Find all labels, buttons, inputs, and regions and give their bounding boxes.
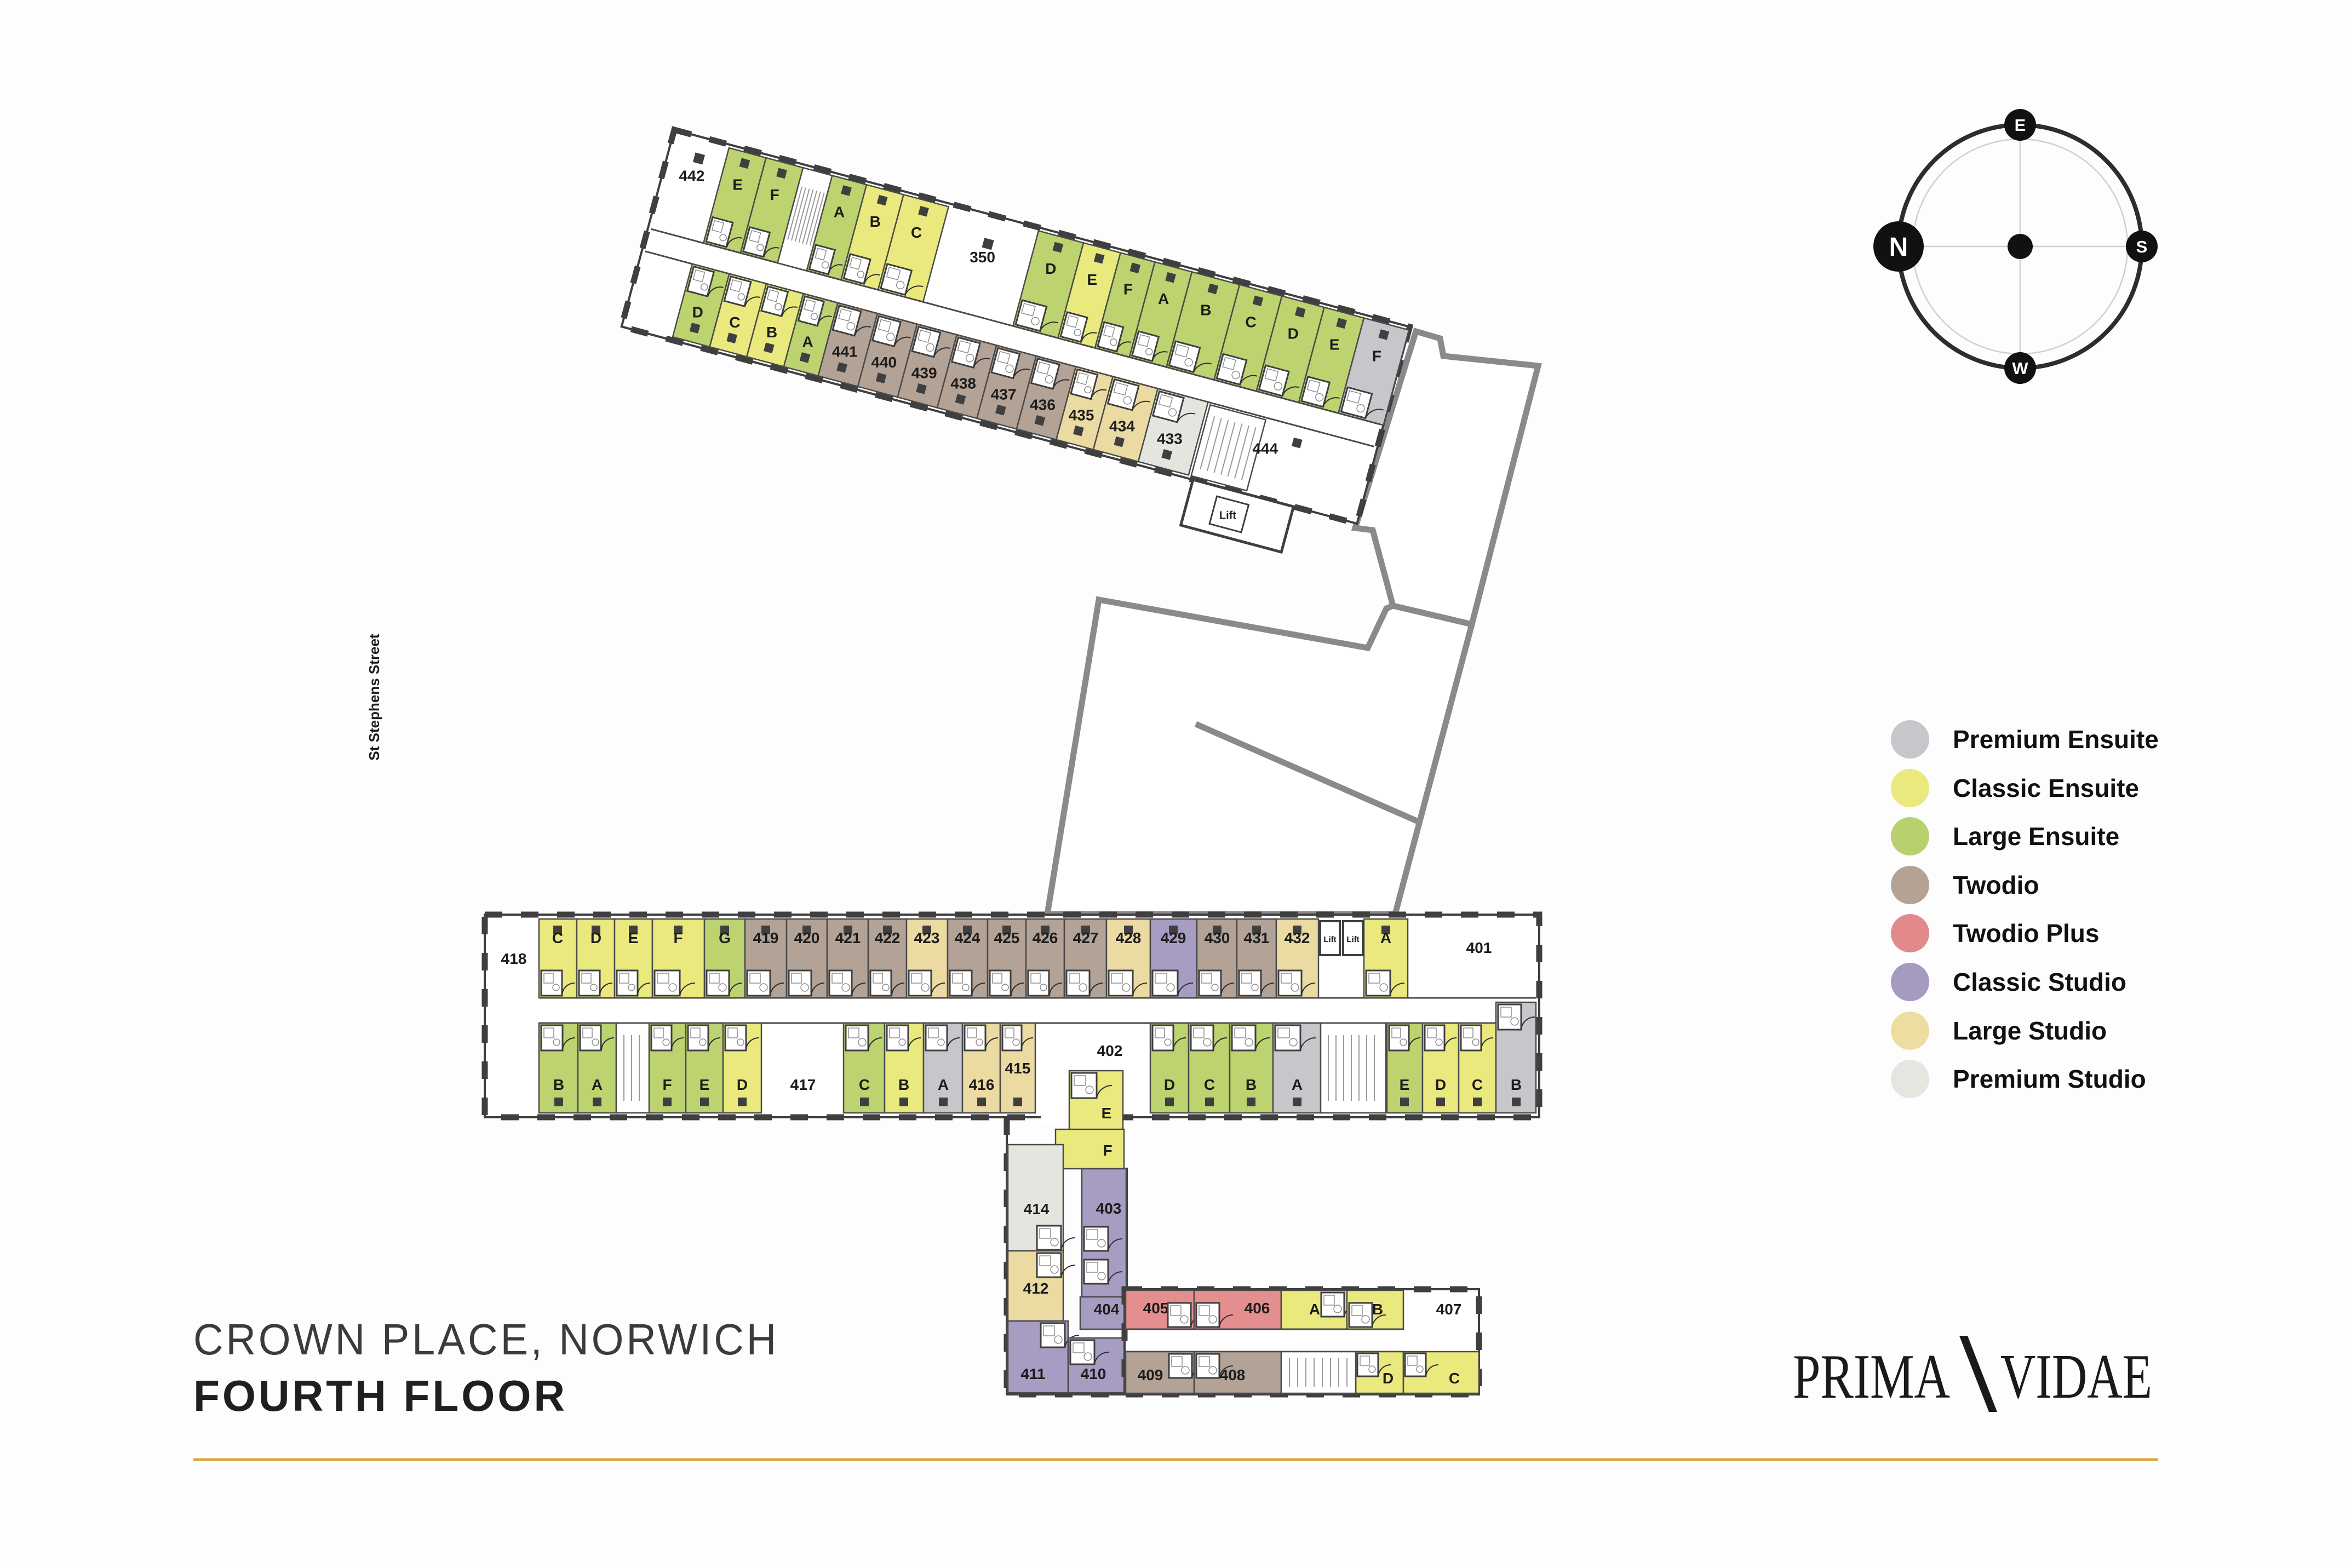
svg-text:F: F — [1123, 281, 1133, 298]
svg-text:406: 406 — [1245, 1300, 1270, 1317]
svg-text:E: E — [1087, 271, 1097, 288]
svg-text:A: A — [802, 334, 813, 351]
svg-text:418: 418 — [501, 950, 527, 967]
svg-text:B: B — [1246, 1076, 1257, 1093]
svg-text:407: 407 — [1436, 1301, 1462, 1318]
svg-text:C: C — [911, 224, 922, 241]
svg-text:B: B — [1511, 1076, 1522, 1093]
svg-text:439: 439 — [911, 365, 937, 382]
svg-text:A: A — [1380, 929, 1391, 946]
svg-text:A: A — [834, 203, 845, 220]
svg-text:C: C — [1204, 1076, 1215, 1093]
svg-text:Large Ensuite: Large Ensuite — [1953, 822, 2119, 851]
svg-text:VIDAE: VIDAE — [2000, 1342, 2152, 1411]
svg-text:C: C — [552, 929, 563, 946]
svg-text:PRIMA: PRIMA — [1793, 1342, 1950, 1411]
svg-text:C: C — [859, 1076, 870, 1093]
svg-text:417: 417 — [790, 1076, 816, 1093]
svg-text:Twodio: Twodio — [1953, 871, 2039, 899]
svg-text:D: D — [1045, 260, 1056, 277]
svg-text:404: 404 — [1094, 1301, 1120, 1318]
svg-text:B: B — [1200, 302, 1211, 319]
svg-text:D: D — [737, 1076, 748, 1093]
svg-text:Lift: Lift — [1346, 935, 1359, 944]
svg-text:St Stephens Street: St Stephens Street — [366, 634, 382, 761]
svg-text:405: 405 — [1143, 1300, 1169, 1317]
svg-text:S: S — [2136, 237, 2148, 256]
svg-text:B: B — [553, 1076, 564, 1093]
svg-text:E: E — [1329, 336, 1340, 353]
svg-text:E: E — [1400, 1076, 1410, 1093]
svg-text:436: 436 — [1030, 396, 1056, 413]
svg-text:412: 412 — [1023, 1280, 1049, 1297]
svg-text:419: 419 — [753, 929, 779, 946]
svg-text:421: 421 — [835, 929, 861, 946]
svg-text:427: 427 — [1073, 929, 1099, 946]
svg-text:416: 416 — [969, 1076, 995, 1093]
svg-text:Classic Studio: Classic Studio — [1953, 968, 2126, 996]
svg-text:E: E — [2015, 116, 2026, 135]
svg-text:C: C — [1449, 1370, 1460, 1387]
svg-text:431: 431 — [1244, 929, 1270, 946]
svg-text:E: E — [732, 176, 743, 193]
svg-text:414: 414 — [1024, 1201, 1050, 1217]
svg-text:Lift: Lift — [1323, 935, 1336, 944]
svg-text:E: E — [699, 1076, 710, 1093]
svg-text:415: 415 — [1005, 1060, 1031, 1077]
svg-text:401: 401 — [1466, 939, 1492, 956]
svg-text:B: B — [766, 324, 777, 341]
svg-text:F: F — [1103, 1142, 1112, 1159]
svg-text:425: 425 — [994, 929, 1020, 946]
svg-text:430: 430 — [1205, 929, 1230, 946]
svg-text:409: 409 — [1138, 1366, 1163, 1383]
svg-text:437: 437 — [991, 386, 1017, 403]
svg-text:428: 428 — [1116, 929, 1142, 946]
svg-text:Premium Ensuite: Premium Ensuite — [1953, 725, 2159, 754]
svg-text:C: C — [729, 314, 740, 331]
svg-text:435: 435 — [1069, 406, 1094, 423]
svg-text:Lift: Lift — [1219, 510, 1236, 522]
svg-text:432: 432 — [1285, 929, 1310, 946]
svg-text:424: 424 — [955, 929, 980, 946]
svg-text:429: 429 — [1161, 929, 1186, 946]
svg-text:411: 411 — [1020, 1365, 1045, 1382]
svg-text:E: E — [1102, 1105, 1112, 1122]
svg-text:438: 438 — [950, 375, 976, 392]
svg-text:A: A — [938, 1076, 949, 1093]
svg-text:G: G — [719, 929, 731, 946]
svg-text:F: F — [1372, 347, 1381, 364]
svg-text:W: W — [2012, 359, 2028, 378]
svg-text:440: 440 — [871, 354, 897, 371]
svg-text:Classic Ensuite: Classic Ensuite — [1953, 774, 2139, 802]
svg-text:426: 426 — [1033, 929, 1058, 946]
svg-text:CROWN PLACE, NORWICH: CROWN PLACE, NORWICH — [193, 1315, 779, 1364]
svg-text:N: N — [1889, 233, 1908, 262]
svg-text:Large Studio: Large Studio — [1953, 1016, 2107, 1045]
svg-text:350: 350 — [970, 249, 995, 266]
svg-text:C: C — [1245, 314, 1256, 331]
svg-text:B: B — [870, 213, 881, 230]
svg-text:F: F — [770, 186, 779, 203]
svg-text:403: 403 — [1096, 1200, 1122, 1217]
svg-text:D: D — [1435, 1076, 1446, 1093]
svg-text:402: 402 — [1097, 1042, 1123, 1059]
svg-text:422: 422 — [875, 929, 901, 946]
svg-text:E: E — [628, 929, 639, 946]
svg-text:FOURTH FLOOR: FOURTH FLOOR — [193, 1371, 567, 1420]
svg-text:441: 441 — [832, 343, 858, 360]
svg-text:A: A — [1309, 1301, 1320, 1318]
svg-text:444: 444 — [1252, 440, 1278, 457]
svg-text:434: 434 — [1109, 417, 1135, 434]
svg-text:A: A — [592, 1076, 603, 1093]
svg-text:A: A — [1158, 290, 1169, 307]
svg-text:Twodio Plus: Twodio Plus — [1953, 919, 2099, 947]
svg-text:B: B — [898, 1076, 909, 1093]
svg-text:D: D — [1383, 1370, 1394, 1387]
svg-text:D: D — [590, 929, 601, 946]
svg-text:410: 410 — [1081, 1365, 1106, 1382]
svg-text:F: F — [673, 929, 683, 946]
svg-text:C: C — [1472, 1076, 1483, 1093]
svg-text:D: D — [1164, 1076, 1175, 1093]
svg-text:Premium Studio: Premium Studio — [1953, 1065, 2146, 1093]
svg-text:433: 433 — [1157, 430, 1183, 447]
svg-text:442: 442 — [679, 167, 705, 184]
svg-text:420: 420 — [794, 929, 820, 946]
svg-text:D: D — [1288, 325, 1299, 342]
svg-text:F: F — [662, 1076, 672, 1093]
svg-text:D: D — [692, 304, 703, 321]
svg-text:A: A — [1292, 1076, 1303, 1093]
svg-text:423: 423 — [914, 929, 940, 946]
